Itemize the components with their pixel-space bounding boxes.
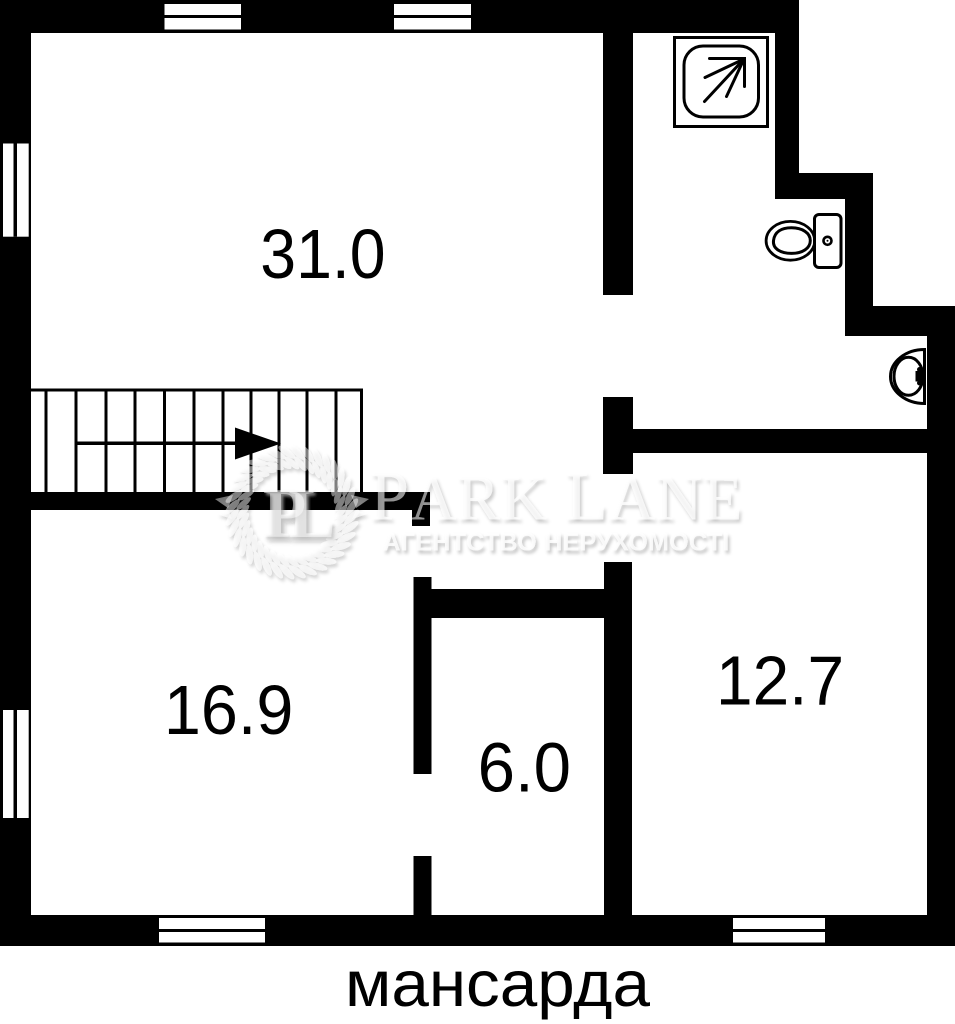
svg-text:АГЕНТСТВО НЕРУХОМОСТІ: АГЕНТСТВО НЕРУХОМОСТІ [382,529,729,557]
svg-text:16.9: 16.9 [164,671,293,749]
svg-text:31.0: 31.0 [260,216,385,294]
svg-text:6.0: 6.0 [478,728,571,807]
svg-text:PARK LANE: PARK LANE [370,459,743,536]
svg-text:мансарда: мансарда [345,947,650,1019]
svg-text:12.7: 12.7 [716,643,844,720]
